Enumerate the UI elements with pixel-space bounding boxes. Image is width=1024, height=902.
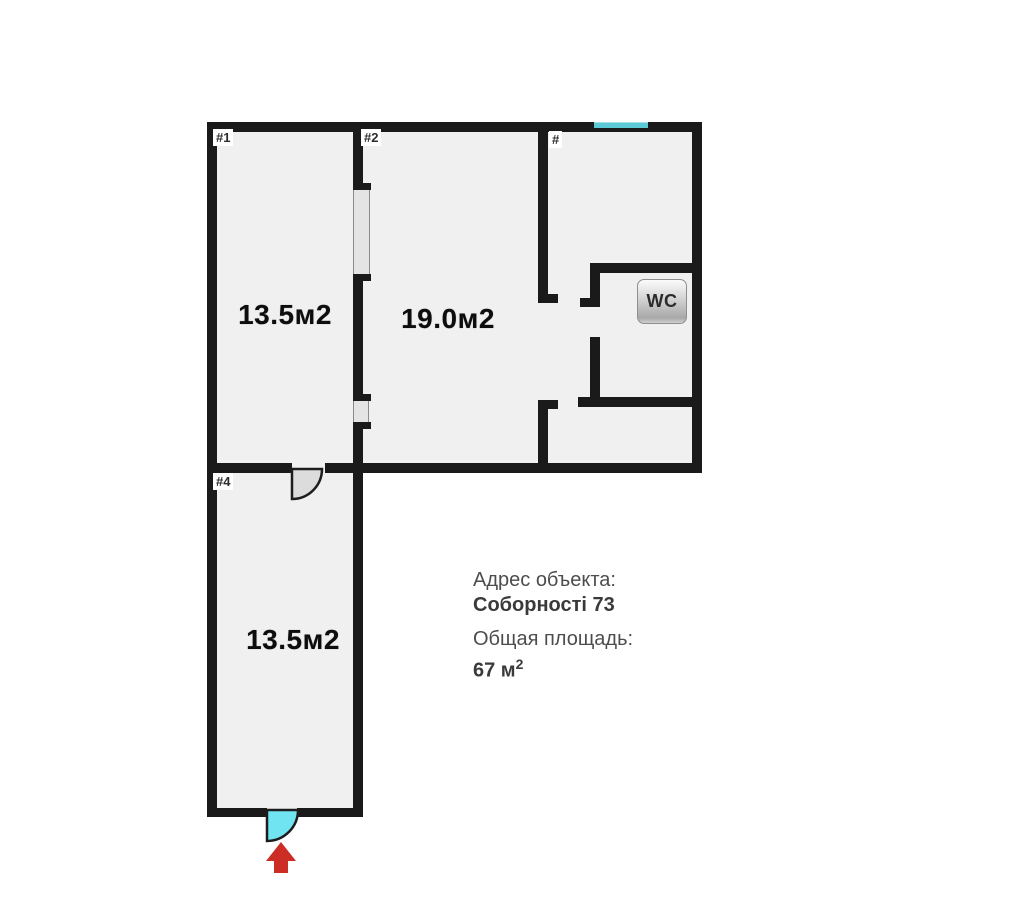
total-area-number: 67 м: [473, 660, 516, 682]
total-area-value: 67 м2: [473, 652, 633, 684]
window-marker-icon: [594, 122, 648, 128]
entrance-door-icon: [267, 810, 298, 841]
wall-middle-horizontal: [207, 463, 292, 473]
room-2-area-label: 19.0м2: [358, 303, 538, 335]
wall-stub: [353, 183, 371, 190]
wall-wc-top: [590, 263, 702, 273]
wall-opening-icon: [353, 400, 369, 424]
room-4-tag: #4: [213, 473, 233, 490]
room-1-area-label: 13.5м2: [212, 299, 358, 331]
wall-stub: [353, 422, 371, 429]
wall-room1-room2: [353, 274, 363, 401]
wall-wc-left: [590, 337, 600, 400]
address-label: Адрес объекта:: [473, 568, 633, 593]
object-info: Адрес объекта: Соборності 73 Общая площа…: [473, 568, 633, 684]
wall-stub: [538, 294, 558, 303]
room-1-tag: #1: [213, 129, 233, 146]
wall-wc-bottom: [578, 397, 702, 407]
wall-middle-horizontal: [325, 463, 702, 473]
wall-room2-hall: [538, 400, 548, 473]
top-section-fill: [210, 126, 698, 468]
wc-badge: WC: [637, 279, 687, 324]
wall-room4-bottom: [207, 808, 267, 817]
wall-right: [692, 122, 702, 473]
wall-room4-bottom: [297, 808, 363, 817]
room-2-tag: #2: [361, 129, 381, 146]
entrance-arrow-icon: [266, 842, 296, 873]
room-4-area-label: 13.5м2: [218, 624, 368, 656]
wall-stub: [353, 274, 371, 281]
wall-stub: [353, 394, 371, 401]
wall-room4-right: [353, 422, 363, 817]
address-value: Соборності 73: [473, 593, 633, 618]
wall-opening-icon: [353, 189, 370, 275]
total-area-superscript: 2: [516, 656, 524, 672]
total-area-label: Общая площадь:: [473, 627, 633, 652]
hall-tag: #: [549, 131, 562, 148]
wall-stub: [580, 298, 600, 307]
floor-plan: #1 #2 # #4 13.5м2 19.0м2 13.5м2 WC Адрес…: [0, 0, 1024, 902]
wall-stub: [538, 400, 558, 409]
wall-room2-hall: [538, 122, 548, 303]
